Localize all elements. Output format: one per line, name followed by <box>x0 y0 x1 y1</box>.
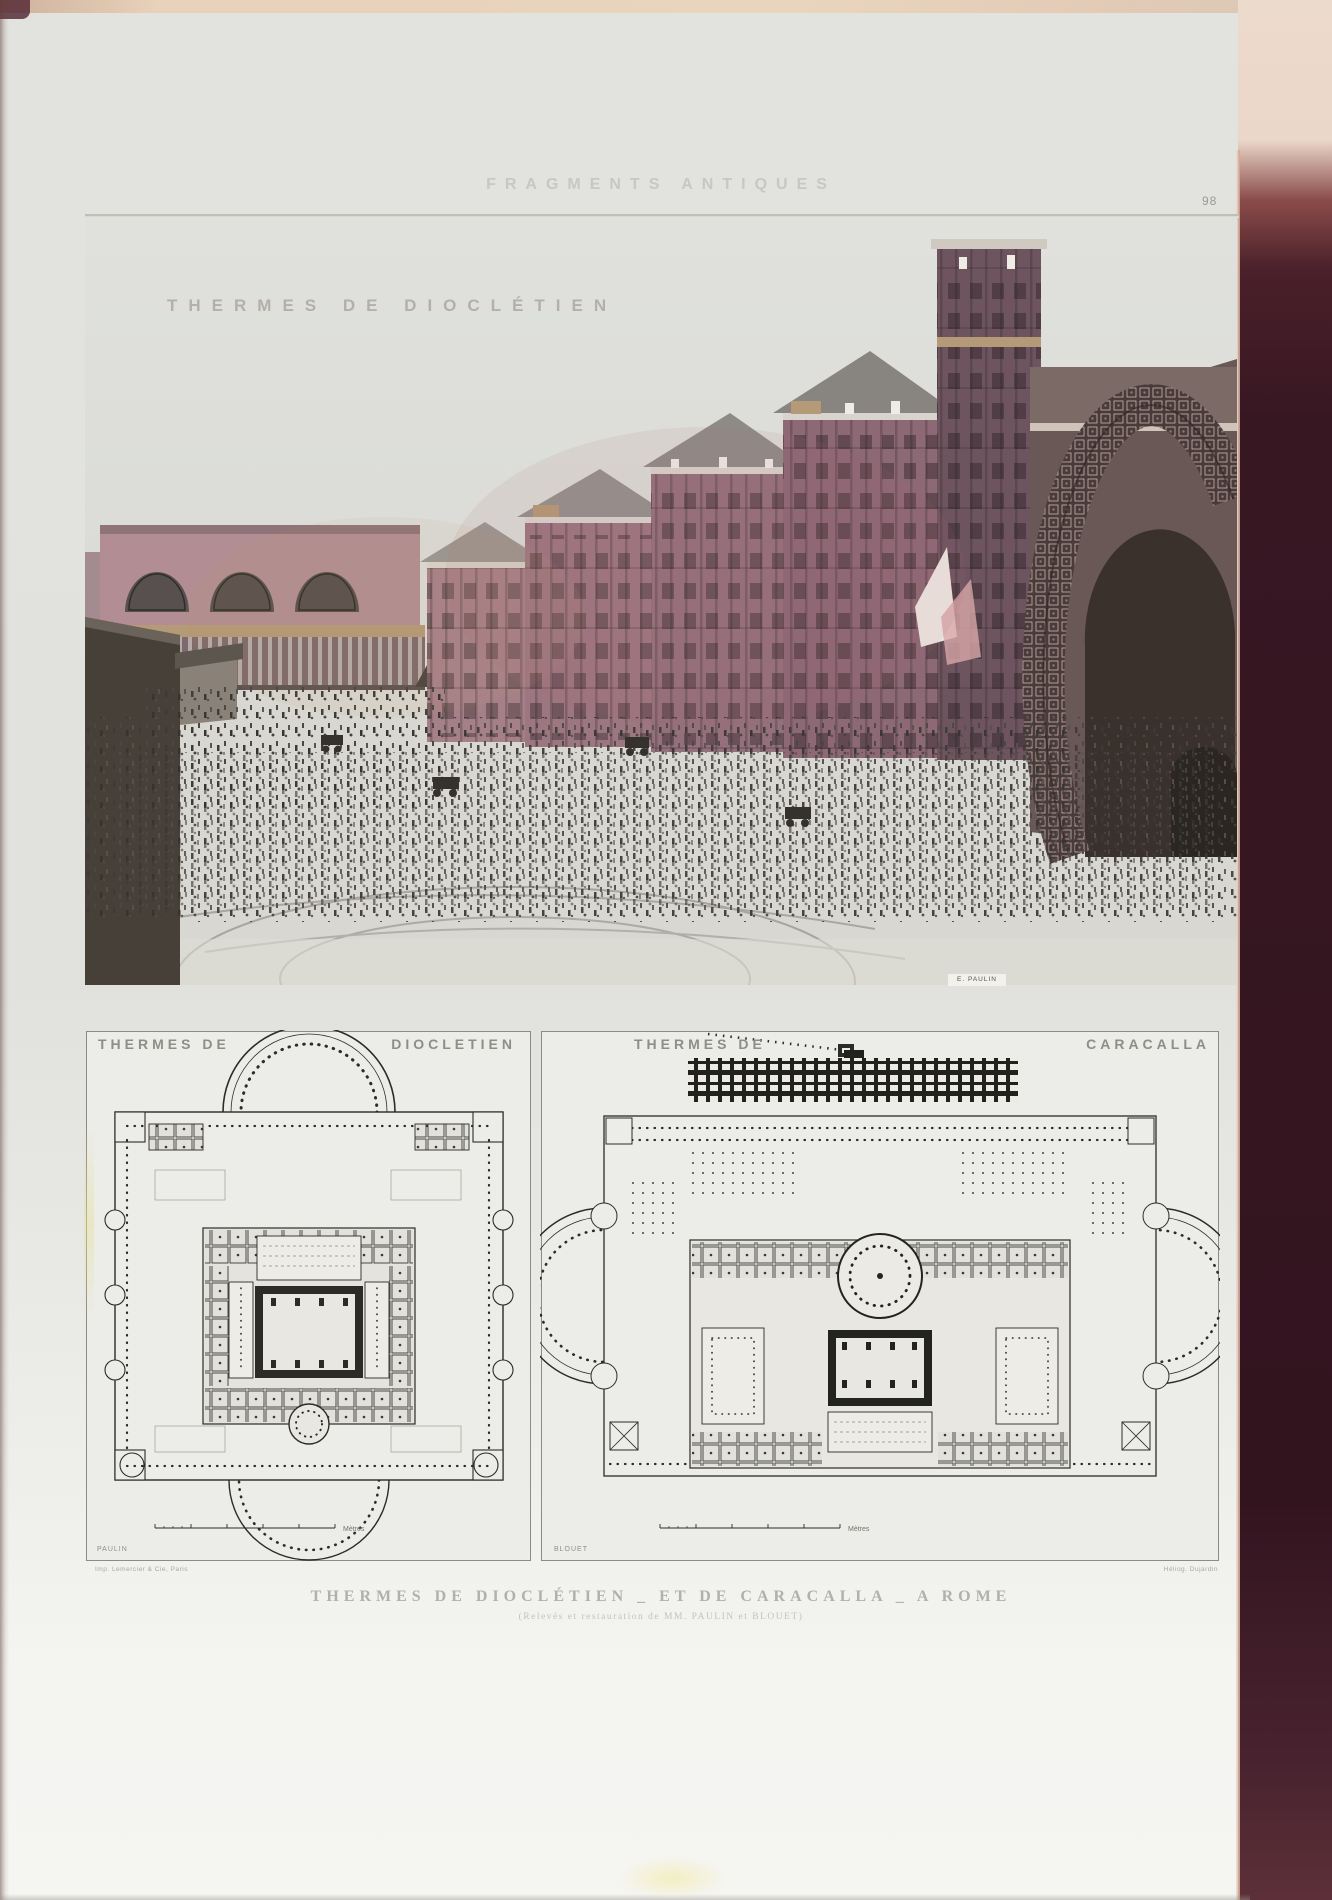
diocletian-title-right: DIOCLETIEN <box>391 1036 516 1052</box>
paper-stain <box>618 1856 728 1900</box>
crowd <box>85 687 1237 922</box>
scan-edge-right <box>1238 0 1332 1900</box>
engraver-credit: Héliog. Dujardin <box>1050 1566 1218 1573</box>
printer-credit: Imp. Lemercier & Cie, Paris <box>95 1566 188 1573</box>
diocletian-title-left: THERMES DE <box>98 1036 230 1052</box>
scan-edge-left <box>0 0 9 1900</box>
page-number: 98 <box>1202 194 1242 208</box>
plate-caption-subtitle: (Relevés et restauration de MM. PAULIN e… <box>85 1612 1237 1622</box>
scan-edge-top <box>0 0 1332 13</box>
caracalla-title-right: CARACALLA <box>1086 1036 1210 1052</box>
diocletian-floor-plan: Mètres PAULIN <box>85 1030 532 1562</box>
antique-plate-scan: FRAGMENTS ANTIQUES 98 <box>0 0 1332 1900</box>
perspective-engraving <box>85 217 1237 985</box>
caracalla-central-baths-block <box>690 1234 1070 1468</box>
diocletian-central-baths-block <box>203 1228 415 1444</box>
engraving-title: THERMES DE DIOCLÉTIEN <box>167 296 617 316</box>
caracalla-plan-header: THERMES DE CARACALLA <box>540 1036 1220 1052</box>
caracalla-scale-label: Mètres <box>848 1526 870 1533</box>
paper-stain-left <box>84 1130 94 1320</box>
scan-edge-bottom <box>0 1894 1250 1900</box>
series-header: FRAGMENTS ANTIQUES <box>85 176 1237 194</box>
caracalla-title-left: THERMES DE <box>634 1036 766 1052</box>
plate-caption: THERMES DE DIOCLÉTIEN _ ET DE CARACALLA … <box>85 1588 1237 1622</box>
caracalla-floor-plan: Mètres BLOUET <box>540 1030 1220 1562</box>
caracalla-architect: BLOUET <box>554 1546 588 1553</box>
header-rule <box>85 214 1239 216</box>
diocletian-plan-header: THERMES DE DIOCLETIEN <box>85 1036 532 1052</box>
engraver-signature: E. PAULIN <box>948 974 1006 986</box>
plate-caption-title: THERMES DE DIOCLÉTIEN _ ET DE CARACALLA … <box>85 1588 1237 1606</box>
diocletian-scale-label: Mètres <box>343 1526 365 1533</box>
diocletian-architect: PAULIN <box>97 1546 128 1553</box>
